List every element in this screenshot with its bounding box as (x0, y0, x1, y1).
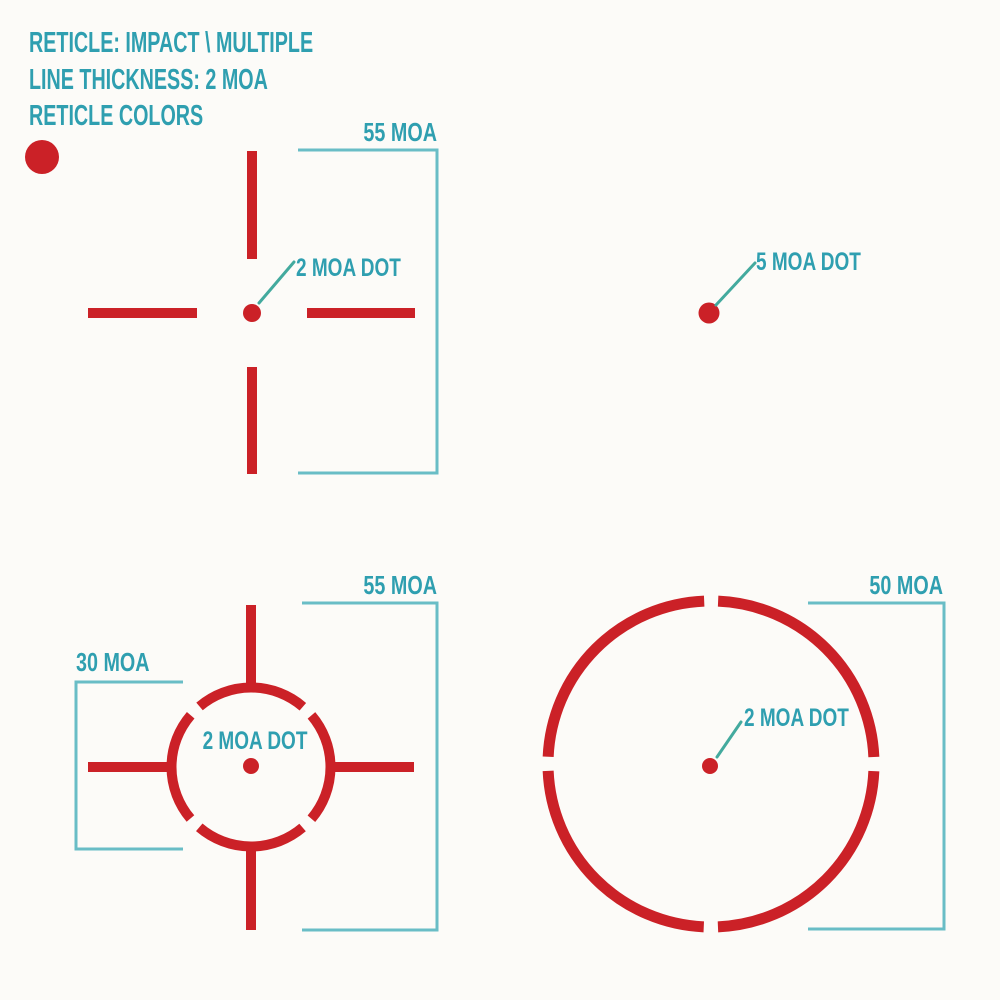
title-line-reticle-name: RETICLE: IMPACT \ MULTIPLE (29, 27, 313, 60)
reticle-segmented-circle-dot (541, 594, 944, 934)
dot-leader-line (716, 263, 755, 305)
red-color-swatch-icon (25, 140, 59, 174)
dot-label-5moa: 5 MOA DOT (756, 248, 861, 277)
dot-leader-line (717, 722, 741, 757)
dim-label-50moa: 50 MOA (829, 571, 943, 601)
reticle-spec-sheet: RETICLE: IMPACT \ MULTIPLE LINE THICKNES… (0, 0, 1000, 1000)
center-dot (702, 758, 718, 774)
crosshair-left-bar (88, 308, 197, 318)
crosshair-right-bar (307, 308, 415, 318)
crosshair-left-bar (88, 762, 172, 772)
dot-label-2moa-top: 2 MOA DOT (296, 254, 401, 283)
center-dot (243, 304, 261, 322)
crosshair-bottom-bar (246, 845, 256, 930)
reticle-diagram-canvas (0, 0, 1000, 1000)
reticle-single-dot (699, 263, 756, 324)
dim-label-55moa-top: 55 MOA (323, 118, 437, 148)
title-line-colors: RETICLE COLORS (29, 100, 203, 133)
crosshair-bottom-bar (247, 367, 257, 474)
dot-label-2moa-segmented: 2 MOA DOT (744, 704, 849, 733)
title-line-thickness: LINE THICKNESS: 2 MOA (29, 64, 268, 97)
dim-label-55moa-bottom: 55 MOA (323, 571, 437, 601)
reticle-crosshair-dot (88, 150, 437, 474)
center-dot (243, 758, 259, 774)
crosshair-top-bar (246, 605, 256, 690)
dot-label-2moa-circle: 2 MOA DOT (203, 727, 308, 756)
crosshair-right-bar (330, 762, 414, 772)
crosshair-top-bar (247, 151, 257, 259)
dot-leader-line (259, 262, 294, 303)
dim-label-30moa: 30 MOA (76, 648, 190, 678)
